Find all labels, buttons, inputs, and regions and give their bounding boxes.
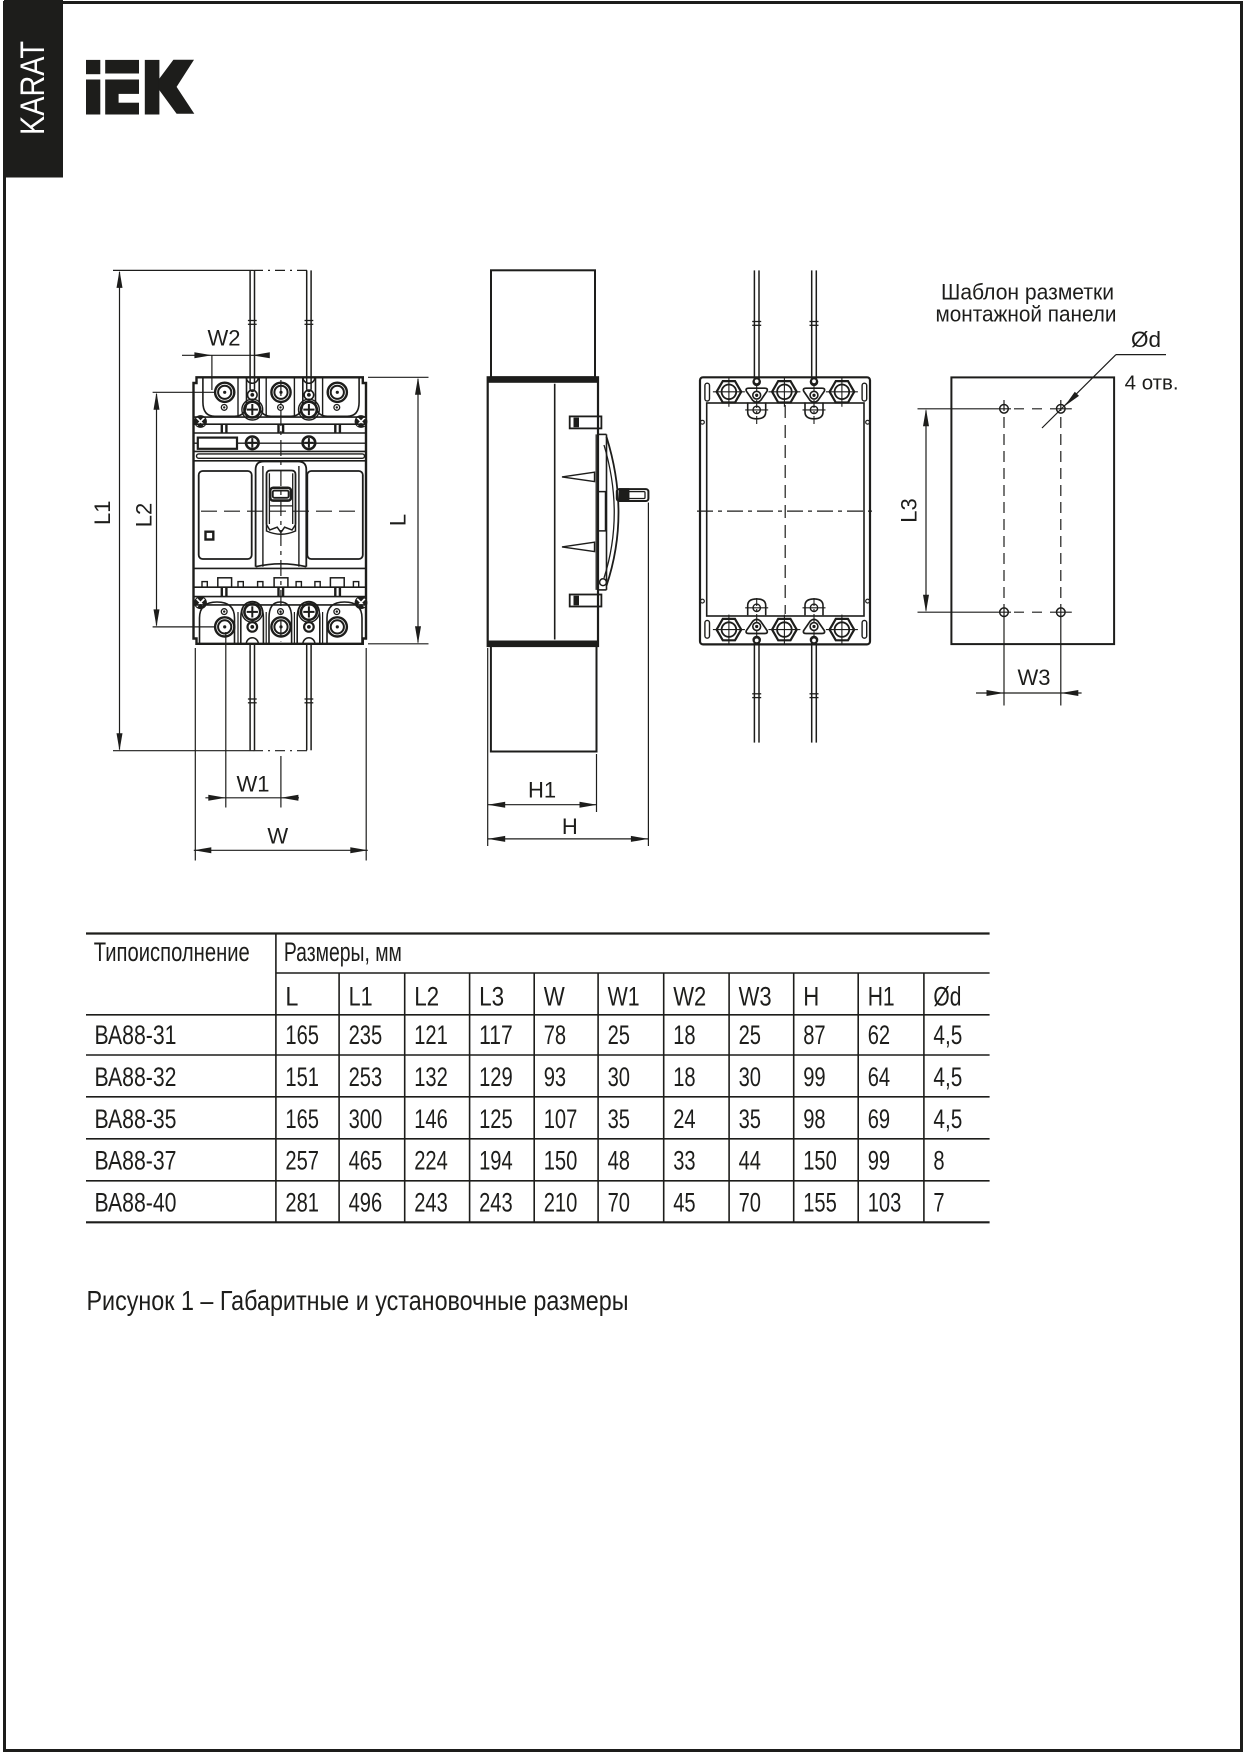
- svg-text:117: 117: [479, 1020, 513, 1050]
- svg-text:8: 8: [933, 1146, 944, 1176]
- svg-text:18: 18: [673, 1062, 695, 1092]
- svg-text:44: 44: [739, 1146, 761, 1176]
- svg-text:ВА88-35: ВА88-35: [95, 1104, 177, 1134]
- svg-text:132: 132: [414, 1062, 448, 1092]
- svg-text:243: 243: [414, 1187, 448, 1217]
- svg-text:465: 465: [349, 1146, 383, 1176]
- svg-text:35: 35: [608, 1104, 630, 1134]
- svg-text:W3: W3: [1018, 665, 1051, 690]
- svg-text:W3: W3: [739, 982, 772, 1012]
- svg-text:25: 25: [608, 1020, 630, 1050]
- svg-text:L: L: [386, 514, 411, 526]
- svg-text:W2: W2: [673, 982, 706, 1012]
- svg-text:L1: L1: [90, 500, 115, 524]
- svg-text:Размеры, мм: Размеры, мм: [284, 937, 402, 967]
- svg-text:Ød: Ød: [1131, 327, 1161, 352]
- svg-text:W2: W2: [208, 326, 241, 351]
- svg-text:103: 103: [868, 1187, 902, 1217]
- svg-text:496: 496: [349, 1187, 383, 1217]
- svg-text:70: 70: [739, 1187, 761, 1217]
- svg-text:монтажной панели: монтажной панели: [936, 301, 1117, 326]
- svg-text:70: 70: [608, 1187, 630, 1217]
- svg-text:W1: W1: [608, 982, 640, 1012]
- svg-text:235: 235: [349, 1020, 383, 1050]
- svg-text:ВА88-37: ВА88-37: [95, 1146, 177, 1176]
- svg-text:L1: L1: [349, 982, 373, 1012]
- svg-text:W1: W1: [237, 772, 270, 797]
- svg-text:W: W: [544, 982, 565, 1012]
- svg-text:L2: L2: [414, 982, 439, 1012]
- svg-text:99: 99: [803, 1062, 825, 1092]
- svg-text:7: 7: [933, 1187, 944, 1217]
- svg-text:ВА88-32: ВА88-32: [95, 1062, 177, 1092]
- svg-text:Рисунок 1 – Габаритные и устан: Рисунок 1 – Габаритные и установочные ра…: [87, 1285, 629, 1316]
- svg-text:165: 165: [285, 1104, 319, 1134]
- svg-text:87: 87: [803, 1020, 825, 1050]
- svg-text:45: 45: [673, 1187, 695, 1217]
- svg-text:30: 30: [739, 1062, 761, 1092]
- svg-text:150: 150: [544, 1146, 578, 1176]
- svg-text:243: 243: [479, 1187, 513, 1217]
- svg-text:125: 125: [479, 1104, 513, 1134]
- svg-text:64: 64: [868, 1062, 890, 1092]
- svg-text:194: 194: [479, 1146, 513, 1176]
- svg-text:H: H: [562, 814, 578, 839]
- svg-text:33: 33: [673, 1146, 695, 1176]
- svg-text:253: 253: [349, 1062, 383, 1092]
- svg-text:25: 25: [739, 1020, 761, 1050]
- svg-text:4,5: 4,5: [933, 1020, 962, 1050]
- svg-text:W: W: [267, 824, 288, 849]
- svg-text:L: L: [285, 982, 298, 1012]
- svg-text:L3: L3: [479, 982, 504, 1012]
- svg-text:24: 24: [673, 1104, 695, 1134]
- svg-text:300: 300: [349, 1104, 383, 1134]
- svg-text:165: 165: [285, 1020, 319, 1050]
- svg-text:129: 129: [479, 1062, 513, 1092]
- svg-text:18: 18: [673, 1020, 695, 1050]
- svg-text:Типоисполнение: Типоисполнение: [94, 937, 250, 967]
- svg-text:93: 93: [544, 1062, 566, 1092]
- svg-text:281: 281: [285, 1187, 319, 1217]
- svg-text:62: 62: [868, 1020, 890, 1050]
- svg-text:L2: L2: [132, 503, 157, 527]
- svg-text:257: 257: [285, 1146, 319, 1176]
- svg-text:224: 224: [414, 1146, 448, 1176]
- svg-text:99: 99: [868, 1146, 890, 1176]
- svg-text:H: H: [803, 982, 819, 1012]
- svg-text:210: 210: [544, 1187, 578, 1217]
- svg-text:30: 30: [608, 1062, 630, 1092]
- svg-text:4,5: 4,5: [933, 1104, 962, 1134]
- svg-text:107: 107: [544, 1104, 578, 1134]
- svg-text:L3: L3: [897, 498, 922, 522]
- svg-text:H1: H1: [868, 982, 895, 1012]
- svg-text:Ød: Ød: [933, 982, 961, 1012]
- svg-text:150: 150: [803, 1146, 837, 1176]
- svg-text:78: 78: [544, 1020, 566, 1050]
- svg-text:151: 151: [285, 1062, 319, 1092]
- svg-text:ВА88-40: ВА88-40: [95, 1187, 177, 1217]
- svg-text:4,5: 4,5: [933, 1062, 962, 1092]
- svg-text:H1: H1: [528, 777, 556, 802]
- svg-text:146: 146: [414, 1104, 448, 1134]
- svg-text:69: 69: [868, 1104, 890, 1134]
- svg-text:48: 48: [608, 1146, 630, 1176]
- svg-text:35: 35: [739, 1104, 761, 1134]
- svg-text:KARAT: KARAT: [14, 41, 52, 135]
- svg-text:121: 121: [414, 1020, 448, 1050]
- svg-text:155: 155: [803, 1187, 837, 1217]
- svg-text:4 отв.: 4 отв.: [1125, 372, 1179, 395]
- svg-text:ВА88-31: ВА88-31: [95, 1020, 177, 1050]
- svg-text:98: 98: [803, 1104, 825, 1134]
